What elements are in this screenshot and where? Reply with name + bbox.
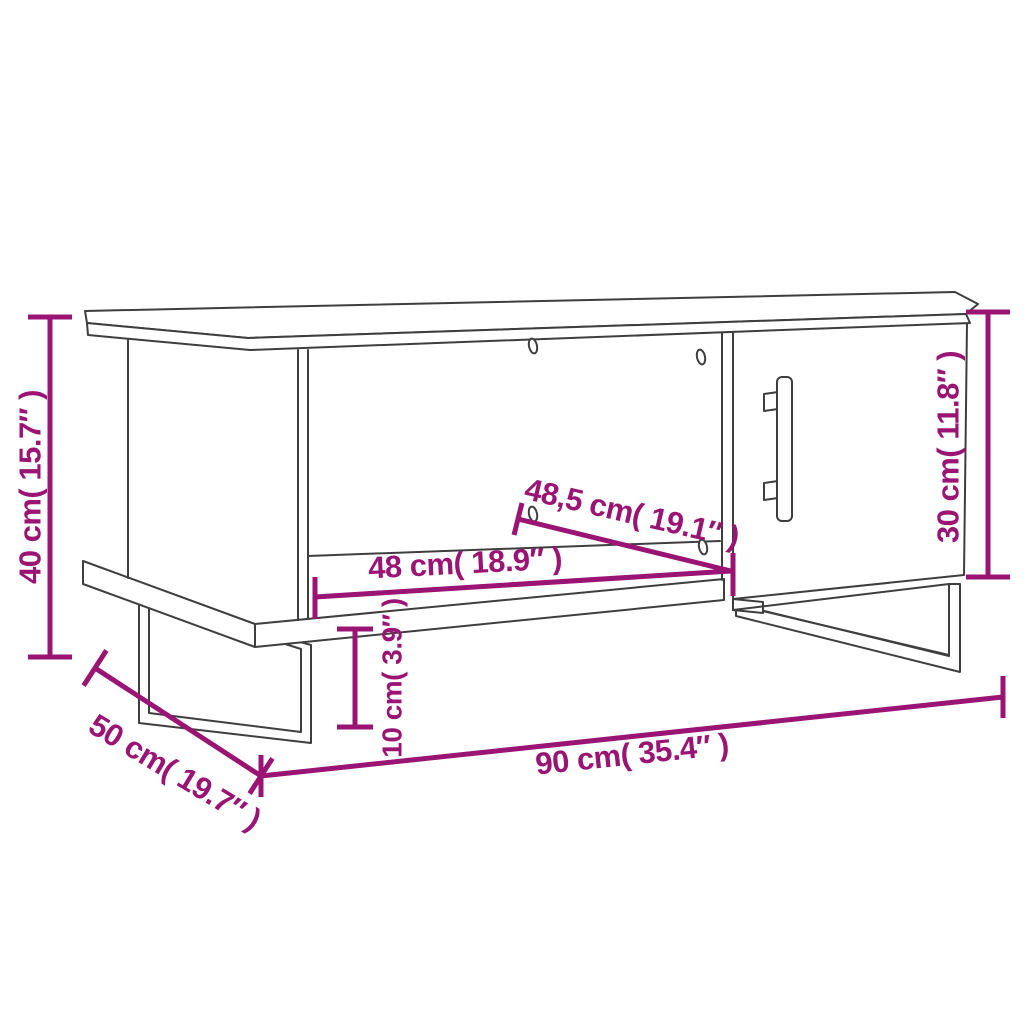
height-dimension-label: 40 cm( 15.7″ ) — [13, 390, 48, 584]
door-height-dimension-label: 30 cm( 11.8″ ) — [931, 351, 966, 543]
product-dimension-diagram: 40 cm( 15.7″ ) 30 cm( 11.8″ ) 10 cm( 3.9… — [0, 0, 1024, 1024]
dimension-diagram-canvas: 40 cm( 15.7″ ) 30 cm( 11.8″ ) 10 cm( 3.9… — [0, 0, 1024, 1024]
clearance-dimension-label: 10 cm( 3.9″ ) — [377, 598, 408, 757]
